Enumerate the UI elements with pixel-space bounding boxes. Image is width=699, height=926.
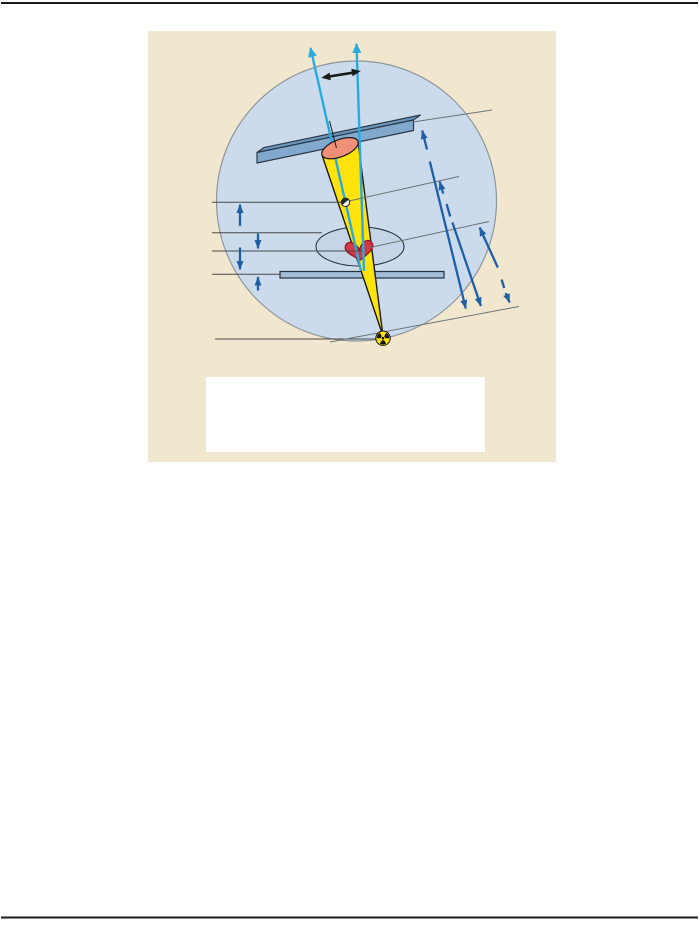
book-page xyxy=(0,0,699,926)
radiation-trefoil-icon xyxy=(376,331,390,345)
figure-beam-geometry-diagram xyxy=(0,0,699,926)
caption-box xyxy=(206,377,485,452)
trefoil-center-dot xyxy=(382,337,385,340)
